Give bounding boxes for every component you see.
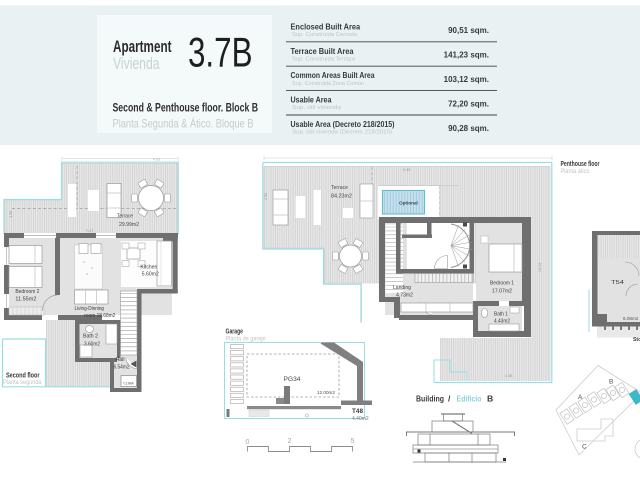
- svg-text:Sup. Construida Terraza: Sup. Construida Terraza: [292, 56, 355, 62]
- svg-text:PG34: PG34: [284, 376, 302, 383]
- svg-text:17.07m2: 17.07m2: [492, 289, 512, 295]
- svg-text:0: 0: [246, 439, 250, 446]
- svg-text:7.47: 7.47: [86, 229, 93, 233]
- svg-text:90,28 sqm.: 90,28 sqm.: [448, 124, 489, 133]
- svg-text:4.93: 4.93: [153, 158, 160, 162]
- svg-text:6.08m2: 6.08m2: [623, 316, 639, 321]
- svg-text:Edificio: Edificio: [457, 394, 482, 404]
- svg-text:3.7B: 3.7B: [188, 29, 253, 76]
- svg-text:room 18.68m2: room 18.68m2: [84, 313, 115, 319]
- svg-text:Planta Segunda & Ático. Bloque: Planta Segunda & Ático. Bloque B: [113, 117, 254, 131]
- svg-text:Building: Building: [416, 394, 444, 404]
- svg-text:Hall: Hall: [116, 357, 125, 363]
- svg-text:Sup. útil vivienda (Decreto 21: Sup. útil vivienda (Decreto 218/2015): [292, 130, 392, 136]
- svg-text:Planta de garaje: Planta de garaje: [226, 336, 266, 343]
- svg-text:72,20 sqm.: 72,20 sqm.: [448, 99, 489, 108]
- svg-text:Landing: Landing: [393, 285, 411, 291]
- svg-text:4.98: 4.98: [264, 193, 268, 200]
- svg-text:Kitchen: Kitchen: [140, 265, 157, 271]
- svg-text:Usable Area (Decreto 218/2015): Usable Area (Decreto 218/2015): [291, 120, 395, 129]
- svg-text:29.99m2: 29.99m2: [119, 222, 139, 228]
- svg-text:3.60m2: 3.60m2: [84, 342, 100, 348]
- svg-text:Penthouse floor: Penthouse floor: [561, 161, 600, 168]
- svg-text:Bath 2: Bath 2: [83, 334, 98, 340]
- svg-text:A: A: [578, 394, 583, 401]
- svg-text:Terrace: Terrace: [331, 185, 348, 191]
- svg-text:13.02: 13.02: [538, 262, 542, 272]
- svg-text:Bath 1: Bath 1: [494, 312, 508, 318]
- svg-text:5.60m2: 5.60m2: [142, 272, 159, 278]
- svg-text:CLIMA: CLIMA: [123, 382, 134, 386]
- svg-text:T54: T54: [611, 280, 624, 286]
- svg-text:B: B: [609, 379, 613, 386]
- svg-text:B: B: [487, 394, 493, 404]
- svg-text:Optional: Optional: [399, 201, 418, 206]
- svg-text:Living-Dinning: Living-Dinning: [75, 306, 105, 312]
- svg-text:Usable Area: Usable Area: [291, 96, 332, 105]
- svg-text:2: 2: [288, 438, 292, 445]
- svg-text:141,23 sqm.: 141,23 sqm.: [444, 51, 489, 60]
- svg-text:Sup. útil vivienda: Sup. útil vivienda: [292, 105, 341, 111]
- svg-text:Terrace: Terrace: [117, 214, 133, 220]
- svg-text:4.73m2: 4.73m2: [396, 293, 413, 299]
- svg-text:Enclosed Built Area: Enclosed Built Area: [291, 22, 361, 31]
- svg-text:90,51 sqm.: 90,51 sqm.: [448, 26, 489, 35]
- svg-text:9.40: 9.40: [403, 168, 410, 172]
- svg-text:5: 5: [351, 438, 355, 445]
- svg-text:Garage: Garage: [226, 329, 244, 336]
- svg-text:Common Areas Built Area: Common Areas Built Area: [291, 71, 375, 80]
- svg-text:4.43m2: 4.43m2: [494, 319, 510, 325]
- svg-text:84.23m2: 84.23m2: [331, 194, 352, 200]
- svg-text:11.55m2: 11.55m2: [15, 297, 36, 303]
- svg-text:Planta segunda: Planta segunda: [3, 379, 42, 386]
- svg-text:Planta ático: Planta ático: [561, 168, 590, 175]
- svg-text:Second & Penthouse floor. Bloc: Second & Penthouse floor. Block B: [113, 101, 259, 115]
- svg-text:12.00m2: 12.00m2: [317, 390, 335, 395]
- svg-text:6.54m2: 6.54m2: [114, 365, 130, 371]
- svg-text:Vivienda: Vivienda: [113, 54, 160, 73]
- svg-text:T48: T48: [352, 408, 363, 415]
- svg-text:Bedroom 1: Bedroom 1: [490, 281, 514, 287]
- svg-text:103,12 sqm.: 103,12 sqm.: [444, 75, 489, 84]
- svg-text:Terrace Built Area: Terrace Built Area: [291, 47, 355, 56]
- svg-text:4.40m2: 4.40m2: [352, 416, 369, 422]
- svg-text:Bedroom 2: Bedroom 2: [15, 289, 39, 295]
- svg-text:4.38: 4.38: [505, 374, 512, 378]
- svg-text:Sup. Construida Zona Común: Sup. Construida Zona Común: [292, 81, 364, 87]
- svg-text:3.98: 3.98: [9, 211, 13, 218]
- svg-text:C: C: [582, 444, 587, 451]
- svg-text:Sup. Construida Cerrada: Sup. Construida Cerrada: [292, 32, 357, 38]
- svg-text:Sto: Sto: [633, 337, 640, 343]
